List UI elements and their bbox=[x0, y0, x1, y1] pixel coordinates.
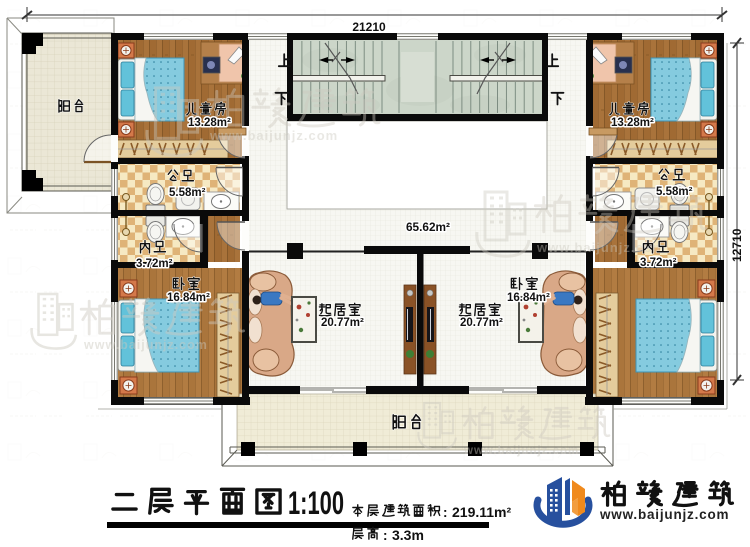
svg-text:1:100: 1:100 bbox=[288, 485, 344, 521]
svg-text:219.11m²: 219.11m² bbox=[452, 504, 511, 520]
svg-text:16.84m²: 16.84m² bbox=[507, 292, 550, 304]
svg-text::: : bbox=[443, 505, 448, 520]
svg-text:5.58m²: 5.58m² bbox=[169, 187, 206, 199]
svg-text:3.72m²: 3.72m² bbox=[640, 257, 677, 269]
svg-text:www.baijunjz.com: www.baijunjz.com bbox=[599, 507, 729, 522]
svg-text:3.3m: 3.3m bbox=[392, 527, 424, 542]
svg-text:12710: 12710 bbox=[730, 228, 744, 262]
svg-text:21210: 21210 bbox=[352, 20, 386, 34]
svg-text:20.77m²: 20.77m² bbox=[460, 317, 503, 329]
svg-text:5.58m²: 5.58m² bbox=[656, 186, 693, 198]
svg-text:www.baijunjz.com: www.baijunjz.com bbox=[463, 445, 579, 457]
svg-text:20.77m²: 20.77m² bbox=[321, 317, 364, 329]
svg-text:13.28m²: 13.28m² bbox=[611, 117, 654, 129]
svg-text::: : bbox=[383, 528, 388, 542]
svg-text:13.28m²: 13.28m² bbox=[188, 117, 231, 129]
svg-text:65.62m²: 65.62m² bbox=[406, 220, 450, 234]
svg-text:www.baijunjz.com: www.baijunjz.com bbox=[83, 338, 208, 352]
svg-text:www.baijunjz.com: www.baijunjz.com bbox=[209, 128, 338, 143]
svg-text:3.72m²: 3.72m² bbox=[136, 258, 173, 270]
svg-text:16.84m²: 16.84m² bbox=[167, 292, 210, 304]
